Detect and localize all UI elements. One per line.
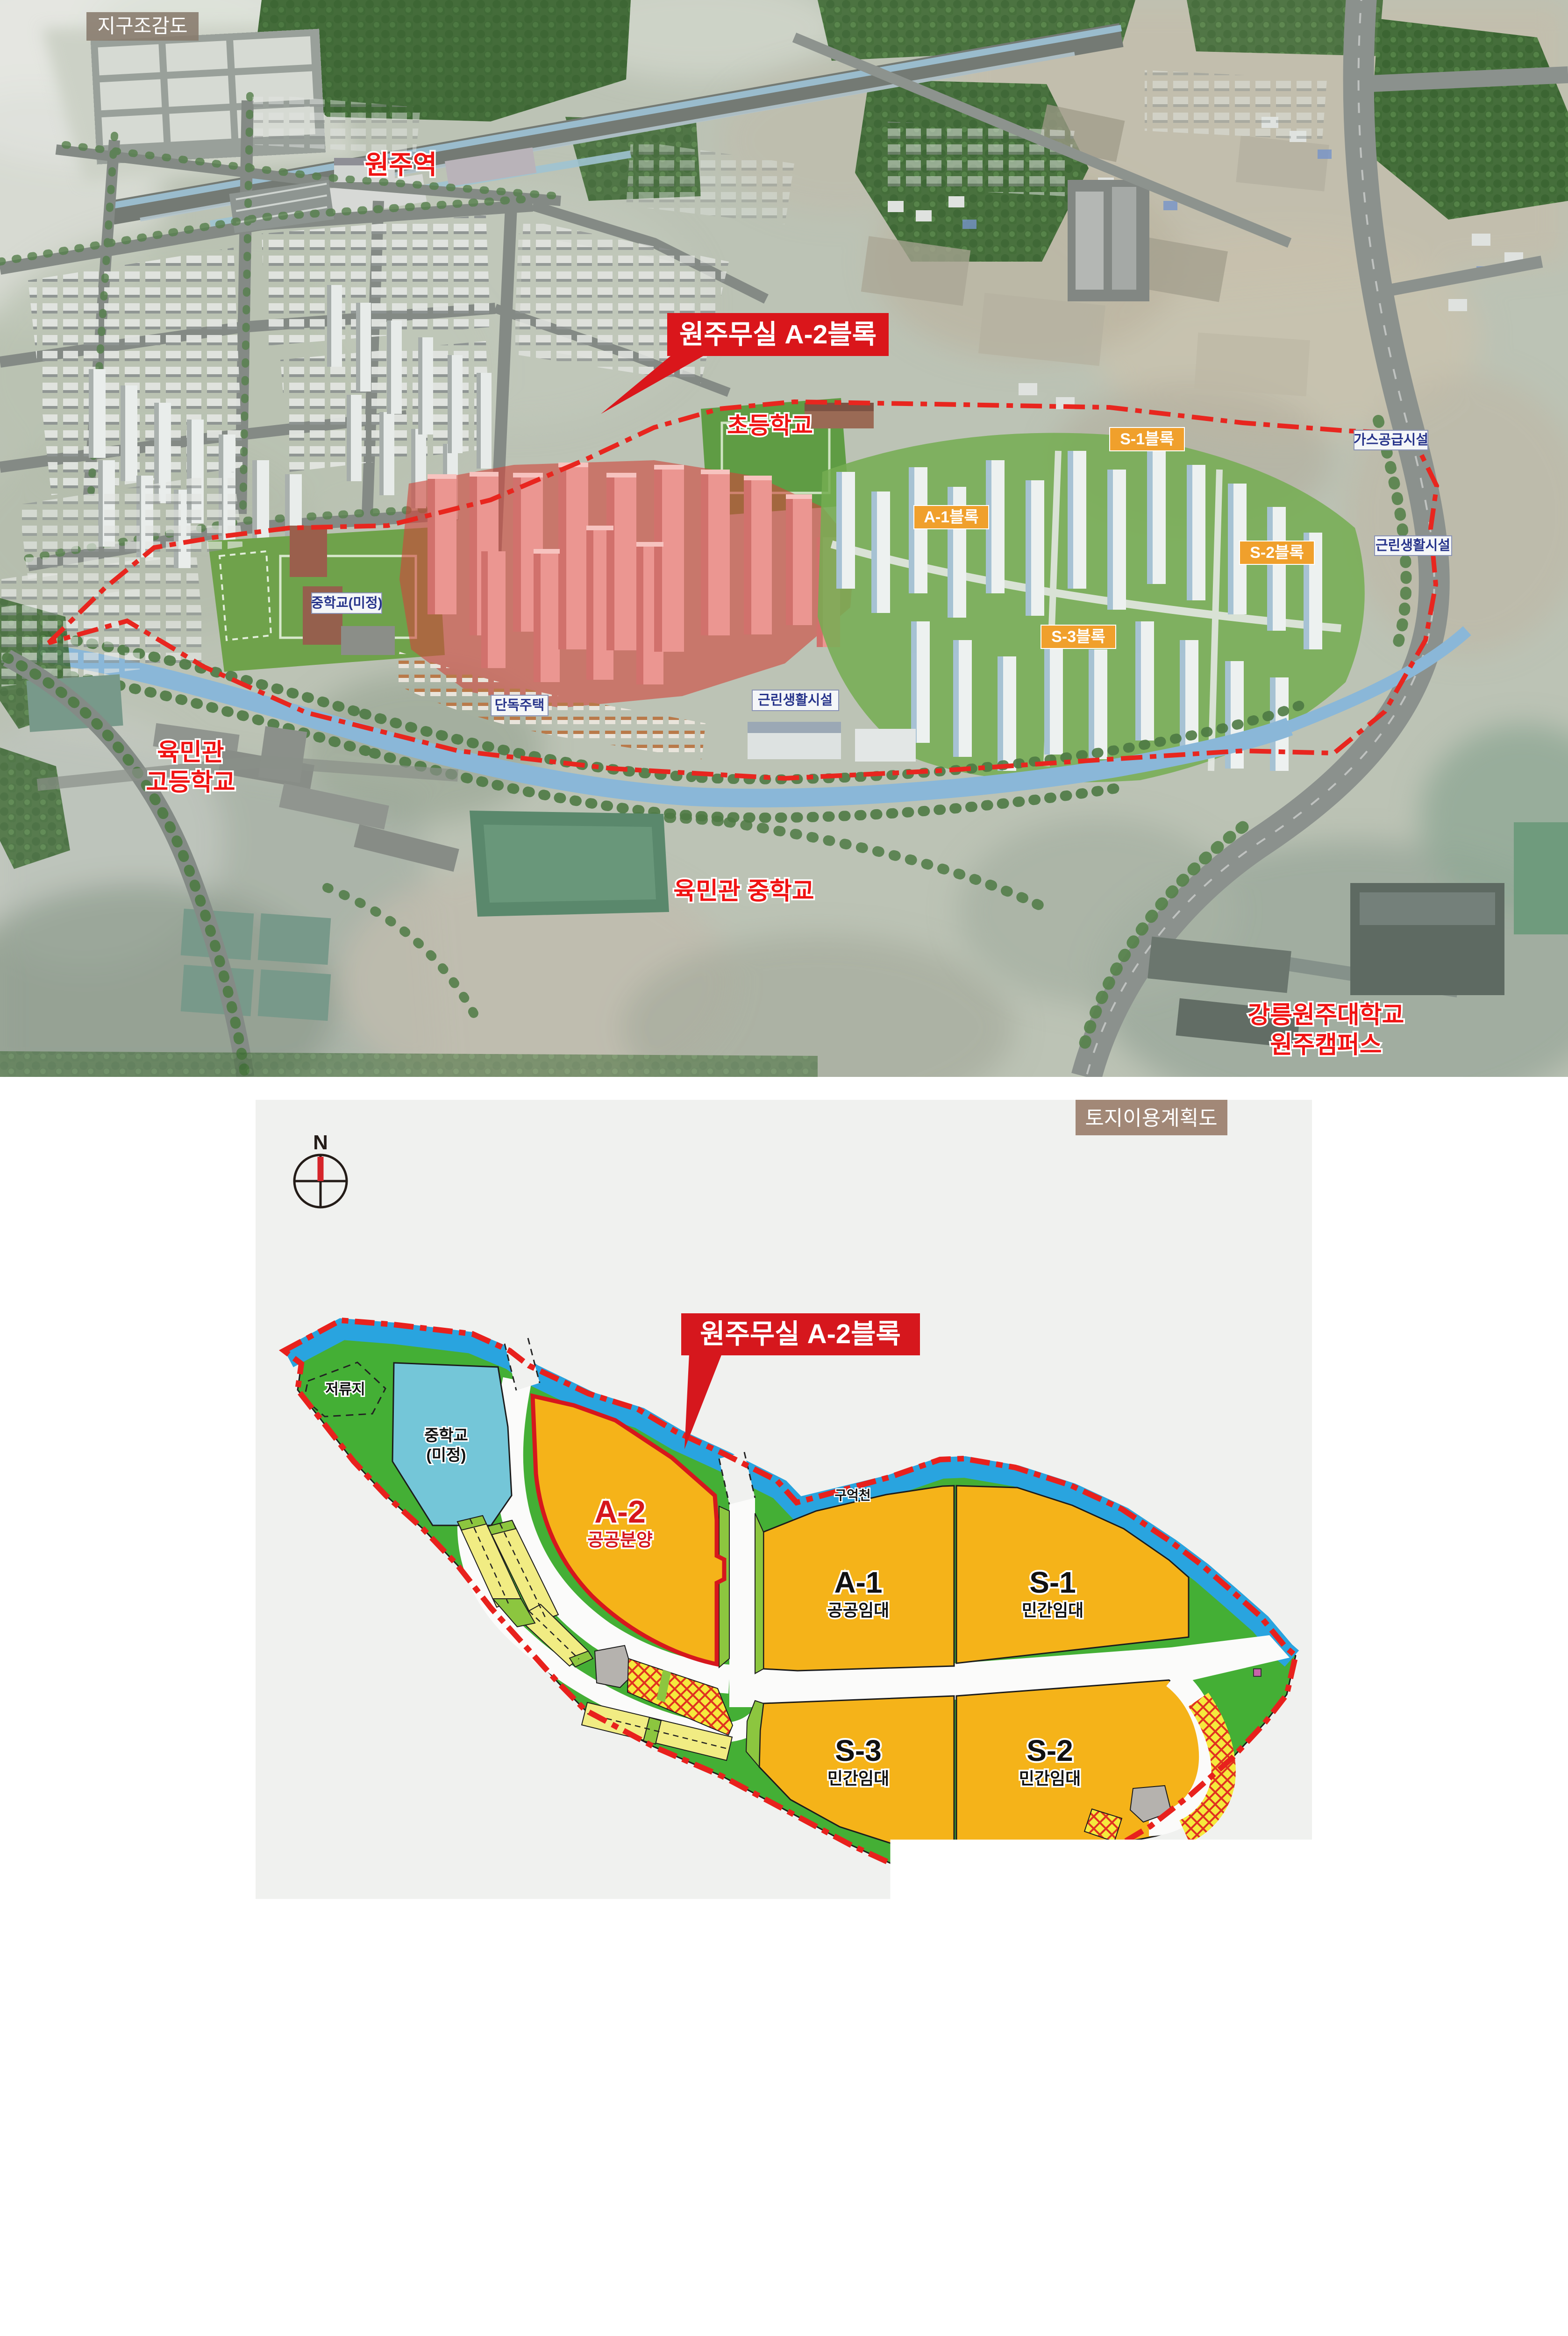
svg-text:S-2: S-2	[1026, 1734, 1073, 1767]
svg-text:민간임대: 민간임대	[827, 1769, 889, 1788]
svg-text:공공임대: 공공임대	[827, 1601, 889, 1620]
svg-text:범: 범	[296, 2051, 316, 2075]
svg-text:강릉원주대학교: 강릉원주대학교	[1248, 1002, 1404, 1029]
svg-text:공공분양: 공공분양	[587, 1531, 653, 1550]
svg-text:고등학교: 고등학교	[146, 769, 235, 796]
svg-text:원주캠퍼스: 원주캠퍼스	[1270, 1032, 1382, 1059]
svg-text:민간임대: 민간임대	[1022, 1601, 1083, 1620]
svg-text:S-1블록: S-1블록	[1120, 430, 1174, 448]
svg-text:교육시설: 교육시설	[390, 2100, 449, 2118]
svg-text:근린생활시설용지: 근린생활시설용지	[831, 2065, 948, 2083]
svg-text:S-2블록: S-2블록	[1250, 544, 1304, 562]
svg-text:초등학교: 초등학교	[727, 413, 813, 439]
svg-text:지구조감도: 지구조감도	[97, 15, 187, 37]
svg-text:S-3: S-3	[835, 1734, 882, 1767]
svg-text:원주무실 A-2블록: 원주무실 A-2블록	[679, 320, 877, 349]
svg-text:주차장: 주차장	[520, 2100, 563, 2118]
svg-text:육민관: 육민관	[157, 739, 224, 766]
svg-text:중학교(미정): 중학교(미정)	[311, 595, 383, 611]
svg-text:공동주택용지: 공동주택용지	[675, 2065, 763, 2083]
svg-text:가스공급설비: 가스공급설비	[1008, 2100, 1096, 2118]
svg-text:A-1: A-1	[834, 1566, 882, 1599]
svg-text:A-2: A-2	[594, 1494, 646, 1530]
svg-text:례: 례	[296, 2092, 316, 2116]
svg-text:공공공지: 공공공지	[1219, 2065, 1277, 2083]
svg-text:단독주택: 단독주택	[495, 698, 545, 713]
svg-text:하천: 하천	[831, 2100, 860, 2118]
svg-text:민간임대: 민간임대	[1019, 1769, 1081, 1788]
svg-text:도로: 도로	[675, 2100, 704, 2118]
svg-text:근린생활시설: 근린생활시설	[1376, 538, 1450, 553]
svg-text:원주무실 A-2블록: 원주무실 A-2블록	[700, 1319, 901, 1349]
svg-text:원주역: 원주역	[365, 150, 437, 179]
svg-text:근린생활시설: 근린생활시설	[758, 692, 833, 708]
svg-text:공원: 공원	[1008, 2065, 1037, 2083]
svg-text:지구계: 지구계	[390, 2065, 434, 2083]
svg-text:N: N	[313, 1131, 328, 1154]
svg-text:중학교: 중학교	[424, 1427, 468, 1445]
svg-text:가스공급시설: 가스공급시설	[1354, 432, 1428, 448]
svg-text:S-1: S-1	[1029, 1566, 1076, 1599]
svg-text:구억천: 구억천	[834, 1488, 870, 1503]
svg-text:육민관 중학교: 육민관 중학교	[673, 878, 814, 905]
svg-text:토지이용계획도: 토지이용계획도	[1085, 1107, 1217, 1130]
svg-text:(미정): (미정)	[426, 1446, 466, 1464]
svg-text:녹지: 녹지	[1112, 2065, 1141, 2083]
svg-text:A-1블록: A-1블록	[924, 508, 978, 526]
svg-text:S-3블록: S-3블록	[1051, 628, 1105, 646]
svg-text:단독주택용지: 단독주택용지	[520, 2065, 607, 2083]
svg-text:저류지: 저류지	[325, 1381, 365, 1397]
